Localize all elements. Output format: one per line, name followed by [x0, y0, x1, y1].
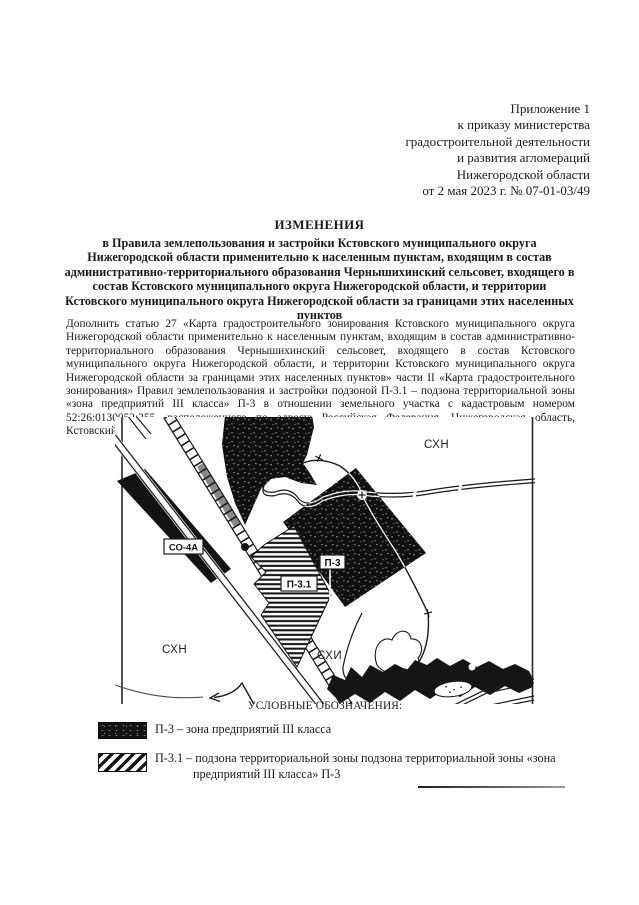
annex-line: и развития агломераций — [405, 150, 590, 166]
page-subtitle: в Правила землепользования и застройки К… — [62, 236, 577, 322]
annex-line: Нижегородской области — [405, 167, 590, 183]
zone-label-sxi: СХИ — [317, 650, 342, 662]
boxed-label-so-4a: СО-4А — [164, 539, 203, 554]
road-gap-mark — [459, 478, 462, 494]
road-branch-edge — [127, 417, 146, 439]
legend-heading: УСЛОВНЫЕ ОБОЗНАЧЕНИЯ: — [115, 700, 535, 712]
annex-line: Приложение 1 — [405, 101, 590, 117]
boxed-label-p3-1: П-3.1 — [281, 576, 317, 591]
legend-swatch-p3-1 — [98, 753, 147, 772]
scanned-document-page: Приложение 1 к приказу министерства град… — [0, 0, 639, 905]
so-4a-label: СО-4А — [169, 543, 198, 554]
annex-reference-block: Приложение 1 к приказу министерства град… — [405, 101, 590, 199]
signature-line — [418, 786, 565, 788]
zoning-map: СО-4А П-3 П-3.1 СХН СХН СХИ — [115, 417, 535, 704]
zoning-map-drawing: СО-4А П-3 П-3.1 СХН СХН СХИ — [115, 417, 535, 704]
boundary-curve-left — [115, 685, 203, 698]
page-title: ИЗМЕНЕНИЯ — [0, 217, 639, 233]
waterside-dark-blobs — [327, 658, 533, 703]
annex-line: к приказу министерства — [405, 117, 590, 133]
legend-swatch-p3 — [98, 722, 147, 739]
boxed-label-p3: П-3 — [320, 555, 345, 569]
arc-plus-tick — [314, 453, 325, 464]
zone-label-sxn-left: СХН — [162, 644, 187, 656]
annex-line: градостроительной деятельности — [405, 134, 590, 150]
legend-item-p3-1: П-3.1 – подзона территориальной зоны под… — [155, 751, 581, 782]
small-clearing — [469, 664, 476, 671]
p3-label: П-3 — [324, 558, 341, 569]
road-branch-edge — [134, 417, 151, 434]
junction-marker — [357, 490, 367, 500]
road-edge — [263, 483, 535, 507]
annex-line: от 2 мая 2023 г. № 07-01-03/49 — [405, 183, 590, 199]
legend-item-p3: П-3 – зона предприятий III класса — [155, 721, 585, 738]
zone-label-sxn-top: СХН — [424, 439, 449, 451]
p3-1-label: П-3.1 — [287, 580, 312, 591]
small-dark-patch — [241, 543, 249, 551]
